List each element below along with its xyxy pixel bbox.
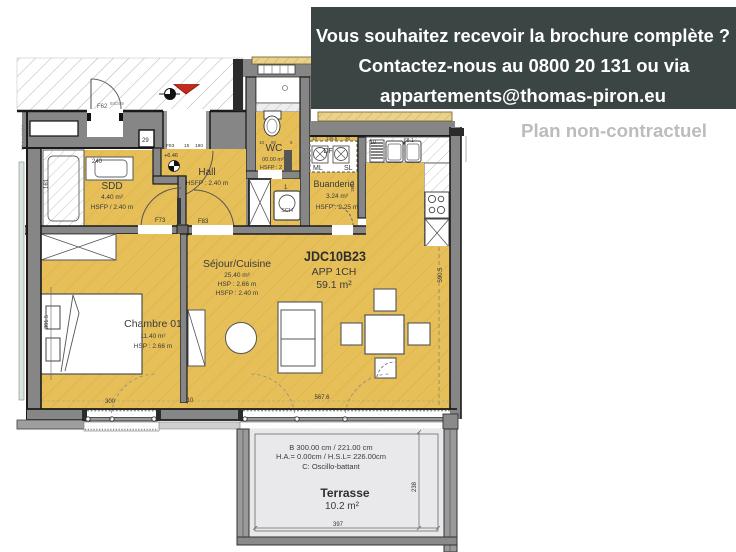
svg-text:10: 10 bbox=[370, 140, 376, 146]
svg-text:WC: WC bbox=[266, 143, 283, 154]
svg-text:10: 10 bbox=[187, 398, 194, 404]
svg-text:93/209: 93/209 bbox=[110, 101, 124, 106]
svg-text:B 300.00 cm / 221.00 cm: B 300.00 cm / 221.00 cm bbox=[289, 443, 372, 452]
svg-text:Contactez-nous au 0800 20 131: Contactez-nous au 0800 20 131 ou via bbox=[359, 55, 691, 76]
svg-text:Hall: Hall bbox=[198, 167, 215, 178]
svg-text:H.A.= 0.00cm / H.S.L= 226.00cm: H.A.= 0.00cm / H.S.L= 226.00cm bbox=[276, 452, 386, 461]
svg-text:HSFP : 2.40 m: HSFP : 2.40 m bbox=[186, 180, 229, 187]
svg-text:190: 190 bbox=[195, 143, 203, 149]
svg-text:appartements@thomas-piron.eu: appartements@thomas-piron.eu bbox=[380, 85, 666, 106]
svg-text:240: 240 bbox=[92, 159, 103, 165]
svg-text:Chambre 01: Chambre 01 bbox=[124, 318, 182, 330]
svg-text:APP 1CH: APP 1CH bbox=[312, 266, 357, 278]
svg-text:Vous souhaitez recevoir la bro: Vous souhaitez recevoir la brochure comp… bbox=[316, 25, 730, 46]
svg-text:HSP : 2.66 m: HSP : 2.66 m bbox=[134, 343, 173, 350]
svg-text:HSFP / 2.40 m: HSFP / 2.40 m bbox=[91, 204, 134, 211]
svg-text:Séjour/Cuisine: Séjour/Cuisine bbox=[203, 258, 271, 270]
svg-text:Terrasse: Terrasse bbox=[320, 486, 369, 500]
svg-text:F62: F62 bbox=[97, 104, 108, 110]
svg-text:238: 238 bbox=[412, 481, 418, 492]
svg-text:F83: F83 bbox=[198, 219, 209, 225]
svg-text:HSFP : 2.40 m: HSFP : 2.40 m bbox=[216, 290, 259, 297]
svg-text:10.2 m²: 10.2 m² bbox=[325, 501, 360, 512]
svg-text:SCH: SCH bbox=[281, 208, 293, 214]
svg-text:10: 10 bbox=[259, 140, 265, 145]
svg-text:00.00 m²: 00.00 m² bbox=[262, 157, 284, 163]
svg-text:68.1: 68.1 bbox=[404, 138, 414, 144]
svg-text:SDD: SDD bbox=[101, 181, 122, 192]
svg-text:FR 1 m 0.48.0: FR 1 m 0.48.0 bbox=[20, 124, 25, 150]
svg-text:261.5: 261.5 bbox=[350, 180, 355, 192]
svg-text:15: 15 bbox=[184, 143, 190, 149]
svg-text:59.1 m²: 59.1 m² bbox=[316, 279, 352, 291]
svg-text:25.40 m²: 25.40 m² bbox=[224, 272, 250, 279]
svg-text:+6.46: +6.46 bbox=[164, 153, 178, 159]
svg-text:DF: DF bbox=[323, 148, 332, 155]
svg-text:397: 397 bbox=[333, 522, 344, 528]
svg-text:590.5: 590.5 bbox=[438, 267, 444, 283]
svg-text:Plan non-contractuel: Plan non-contractuel bbox=[521, 120, 707, 141]
svg-text:4.40 m²: 4.40 m² bbox=[101, 194, 124, 201]
svg-text:HSFP : 2.25 m: HSFP : 2.25 m bbox=[316, 204, 359, 211]
svg-text:300: 300 bbox=[105, 399, 116, 405]
svg-text:JDC10B23: JDC10B23 bbox=[304, 248, 366, 264]
svg-text:C: Oscillo-battant: C: Oscillo-battant bbox=[302, 462, 360, 471]
svg-text:161: 161 bbox=[44, 178, 50, 189]
svg-text:HSP : 2.66 m: HSP : 2.66 m bbox=[218, 281, 257, 288]
svg-text:F93: F93 bbox=[166, 143, 175, 149]
svg-text:29: 29 bbox=[142, 138, 149, 144]
svg-text:567.6: 567.6 bbox=[314, 395, 330, 401]
svg-text:ML: ML bbox=[313, 165, 323, 172]
svg-text:Buanderie: Buanderie bbox=[313, 179, 354, 189]
svg-text:SL: SL bbox=[344, 165, 353, 172]
svg-text:F73: F73 bbox=[155, 218, 166, 224]
svg-text:11.40 m²: 11.40 m² bbox=[140, 333, 166, 340]
svg-text:3.24 m²: 3.24 m² bbox=[326, 193, 349, 200]
svg-text:381.5: 381.5 bbox=[44, 315, 50, 329]
